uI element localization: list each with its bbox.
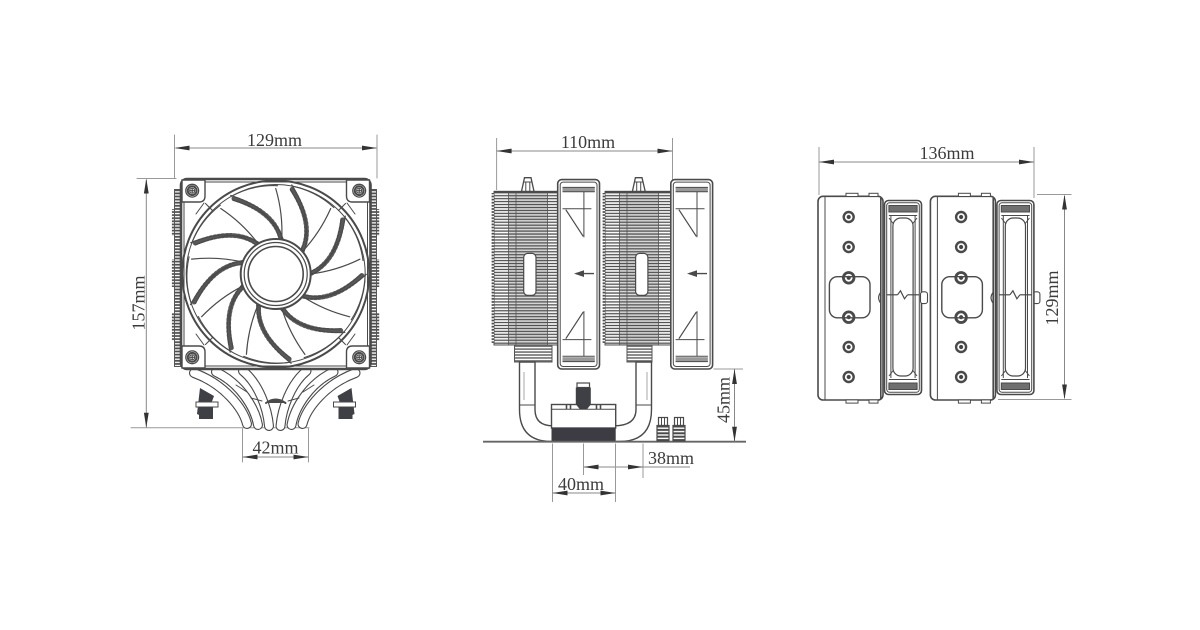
svg-text:136mm: 136mm	[919, 143, 974, 163]
svg-text:42mm: 42mm	[252, 438, 298, 458]
svg-text:45mm: 45mm	[714, 377, 734, 423]
svg-text:129mm: 129mm	[1042, 270, 1062, 325]
svg-text:38mm: 38mm	[648, 448, 694, 468]
svg-text:157mm: 157mm	[129, 275, 149, 330]
svg-text:129mm: 129mm	[247, 130, 302, 150]
svg-text:110mm: 110mm	[561, 132, 615, 152]
svg-text:40mm: 40mm	[558, 474, 604, 494]
